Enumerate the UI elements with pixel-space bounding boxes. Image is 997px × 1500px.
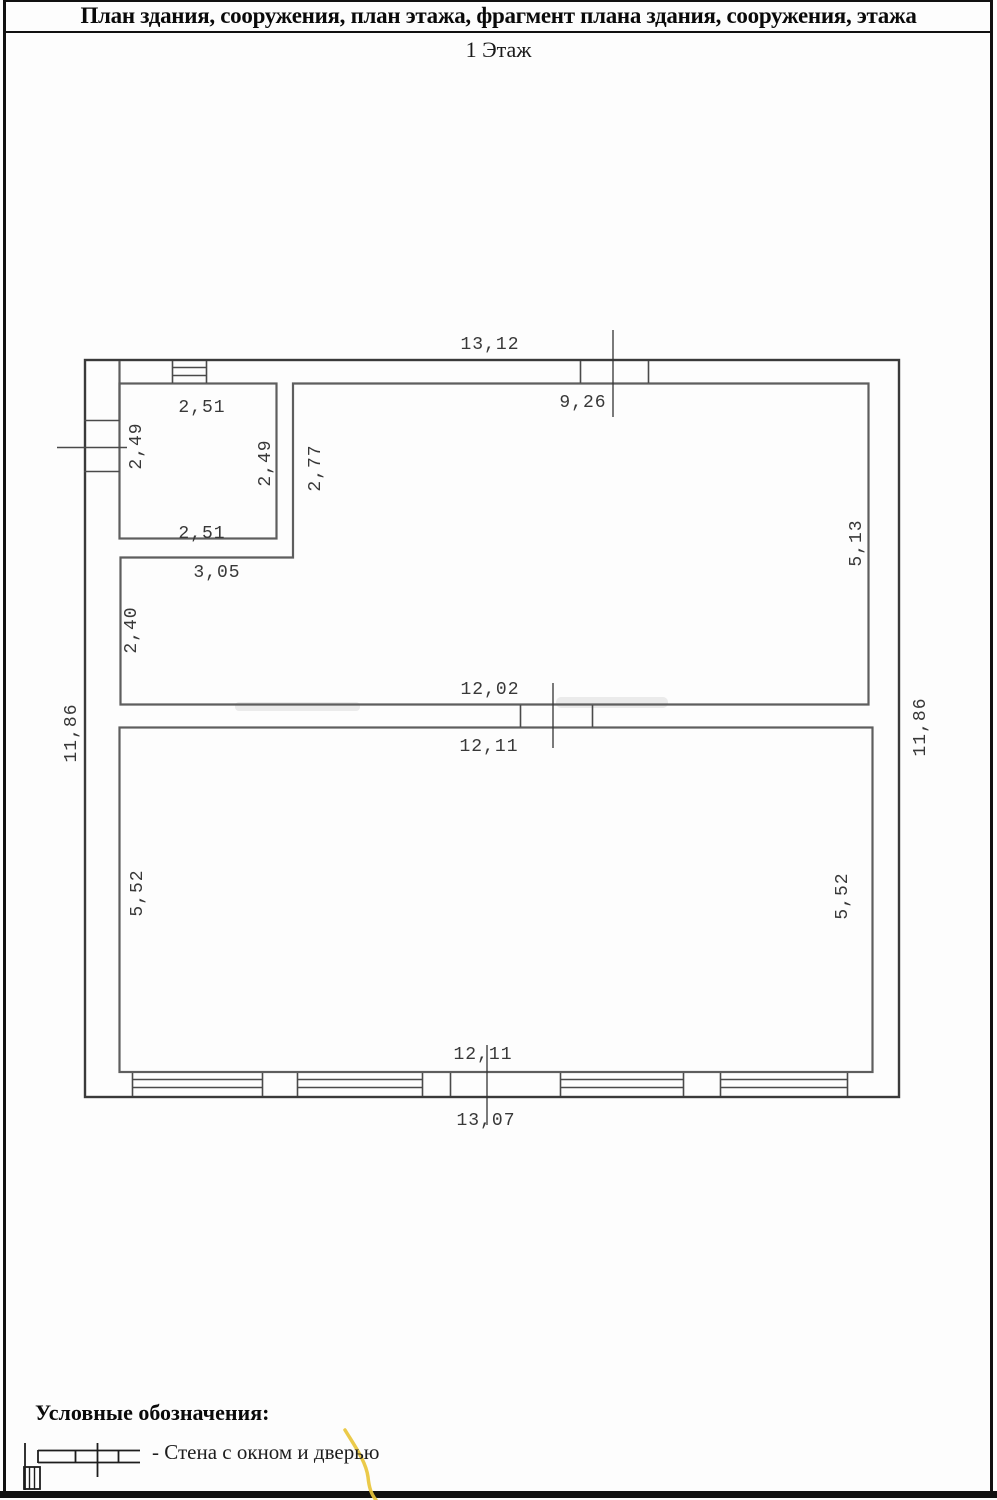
dimension-label-lower-left: 5,52 — [128, 869, 148, 916]
room-lower — [120, 728, 873, 1073]
dimension-label-bottom-outer: 13,07 — [456, 1111, 515, 1131]
document-page: План здания, сооружения, план этажа, фра… — [0, 0, 997, 1500]
dimension-label-right-outer: 11,86 — [911, 697, 931, 756]
dimension-label-lower-right: 5,52 — [833, 872, 853, 919]
dimension-label-notch-height: 2,40 — [122, 606, 142, 653]
legend-title: Условные обозначения: — [35, 1400, 269, 1426]
dimension-label-mid-upper: 12,02 — [460, 680, 519, 700]
window-symbol-left — [57, 421, 127, 472]
dimension-label-room1-bottom: 2,51 — [178, 524, 225, 544]
bottom-wall-windows — [132, 1073, 848, 1096]
dimension-label-room1-right: 2,49 — [256, 439, 276, 486]
room-outlines — [120, 361, 873, 1072]
dimension-label-mid-lower: 12,11 — [459, 737, 518, 757]
dimension-label-upper-left: 2,77 — [306, 444, 326, 491]
middle-wall-opening-ticks — [521, 705, 593, 727]
dimension-label-upper-right: 5,13 — [847, 519, 867, 566]
dimension-label-room1-top: 2,51 — [178, 398, 225, 418]
dimension-label-top-inner: 9,26 — [559, 393, 606, 413]
top-wall-opening-ticks — [581, 361, 649, 383]
dimension-label-top-outer: 13,12 — [460, 335, 519, 355]
dimension-label-left-outer: 11,86 — [62, 703, 82, 762]
dimension-label-notch-width: 3,05 — [193, 563, 240, 583]
room-upper — [121, 384, 869, 705]
window-symbol-top — [172, 361, 207, 383]
dimension-label-room1-left: 2,49 — [127, 422, 147, 469]
dimension-label-bottom-inner: 12,11 — [453, 1045, 512, 1065]
legend-item-label: - Стена с окном и дверью — [152, 1440, 379, 1465]
legend-wall-symbol — [24, 1443, 140, 1490]
